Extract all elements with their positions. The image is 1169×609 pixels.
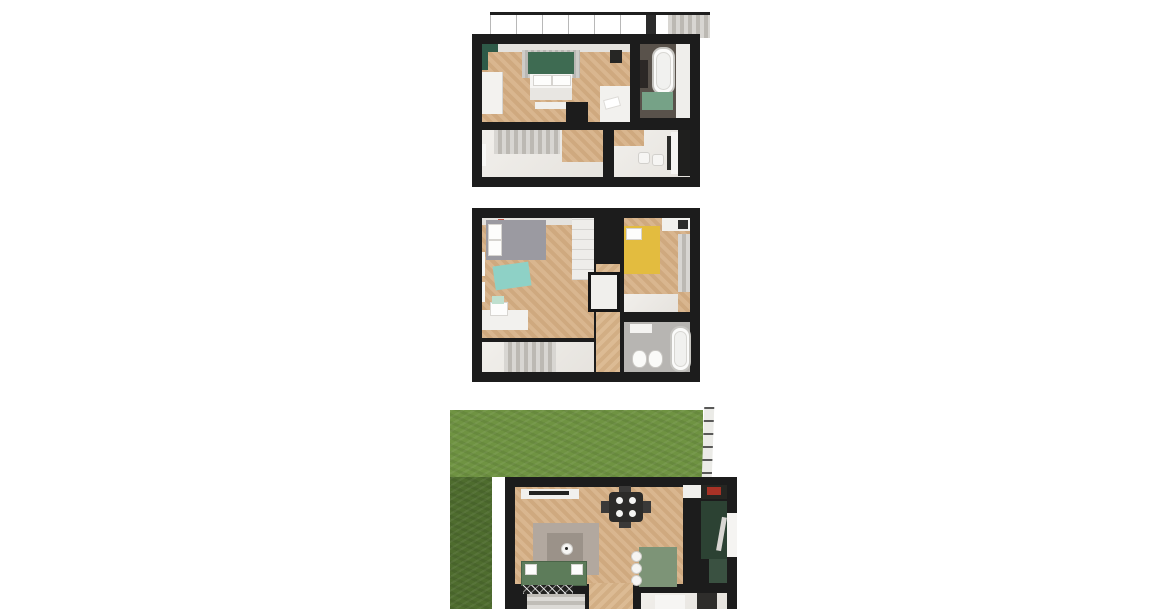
lawn-texture [450, 410, 703, 477]
bottom-room [641, 593, 727, 609]
corridor-closet-box [588, 272, 620, 312]
bathtub [652, 47, 675, 95]
bathtub [670, 326, 691, 372]
desk-monitor [678, 220, 688, 229]
kitchen-island [639, 547, 677, 587]
chair-mint [492, 296, 504, 304]
toilet [648, 350, 663, 368]
pillow [488, 240, 502, 256]
tv-screen [529, 491, 569, 495]
top-floor-plan [472, 12, 712, 187]
bottom-room-dark-piece [697, 593, 717, 609]
bedroom-right-floor-strip [624, 294, 678, 312]
tv-screen [610, 50, 622, 63]
pillow [533, 75, 552, 86]
door-opening [727, 513, 737, 557]
stairs [504, 342, 556, 372]
study-desk-dark [678, 130, 690, 176]
room-bedroom-top [482, 44, 630, 122]
bed-headboard-green [528, 52, 574, 74]
stove [707, 487, 721, 495]
study-desk-edge [667, 136, 671, 170]
bottom-room-furniture [655, 595, 685, 609]
window-opening [482, 282, 485, 302]
plate [629, 510, 636, 517]
wall-notch [566, 102, 588, 122]
bar-stool [631, 551, 642, 562]
table-deco [565, 547, 568, 550]
floor-plan-canvas [0, 0, 1169, 609]
top-floor-body [472, 34, 700, 187]
room-living-dining [515, 487, 683, 584]
lawn [450, 410, 703, 477]
duvet [530, 88, 572, 100]
plate [629, 497, 636, 504]
bath-mat-green [642, 92, 673, 110]
room-bathroom-top [640, 44, 690, 118]
plate [616, 497, 623, 504]
stairs [527, 594, 585, 609]
middle-floor-plan [472, 208, 700, 382]
bed-bench [535, 102, 567, 109]
pillow [488, 224, 502, 240]
lawn-shaded-strip [450, 477, 492, 609]
window-opening [482, 252, 485, 276]
room-bathroom-middle [624, 322, 690, 372]
stool [638, 152, 650, 164]
desk-item [490, 302, 508, 316]
room-study-top [614, 130, 690, 177]
curtain-panel [678, 234, 690, 292]
room-stair-hall-top [482, 130, 603, 177]
window-opening [482, 144, 486, 166]
room-bedroom-left [482, 218, 594, 338]
hall-wood-patch [562, 130, 603, 162]
bar-stool [631, 563, 642, 574]
study-wood-patch [614, 130, 644, 146]
closet [572, 218, 594, 280]
pillow [525, 564, 537, 575]
stair-slat-screen [494, 130, 560, 154]
dining-table [609, 492, 643, 522]
toilet [632, 350, 647, 368]
fence [702, 407, 715, 479]
ground-floor-body [505, 477, 737, 609]
stool [652, 154, 664, 166]
plate [616, 510, 623, 517]
dining-set [603, 487, 649, 529]
vanity-dark [640, 60, 648, 88]
pillow [626, 228, 642, 240]
hallway-wood [589, 583, 633, 609]
sink-counter [630, 324, 652, 333]
pillow [571, 564, 583, 575]
kitchen-green-unit [709, 559, 727, 583]
curtain [482, 52, 488, 70]
lawn-texture [450, 477, 492, 609]
dining-chair [642, 501, 651, 513]
curtain [482, 44, 498, 52]
study-desk-white [671, 132, 678, 174]
ground-floor-plan [450, 410, 740, 609]
wardrobe [482, 72, 503, 114]
bathroom-white-wall [676, 44, 690, 118]
room-bedroom-right [624, 218, 690, 312]
zigzag-doormat [523, 585, 573, 594]
pillow [552, 75, 571, 86]
room-stair-hall-middle [482, 342, 594, 372]
rug-teal [493, 262, 532, 291]
